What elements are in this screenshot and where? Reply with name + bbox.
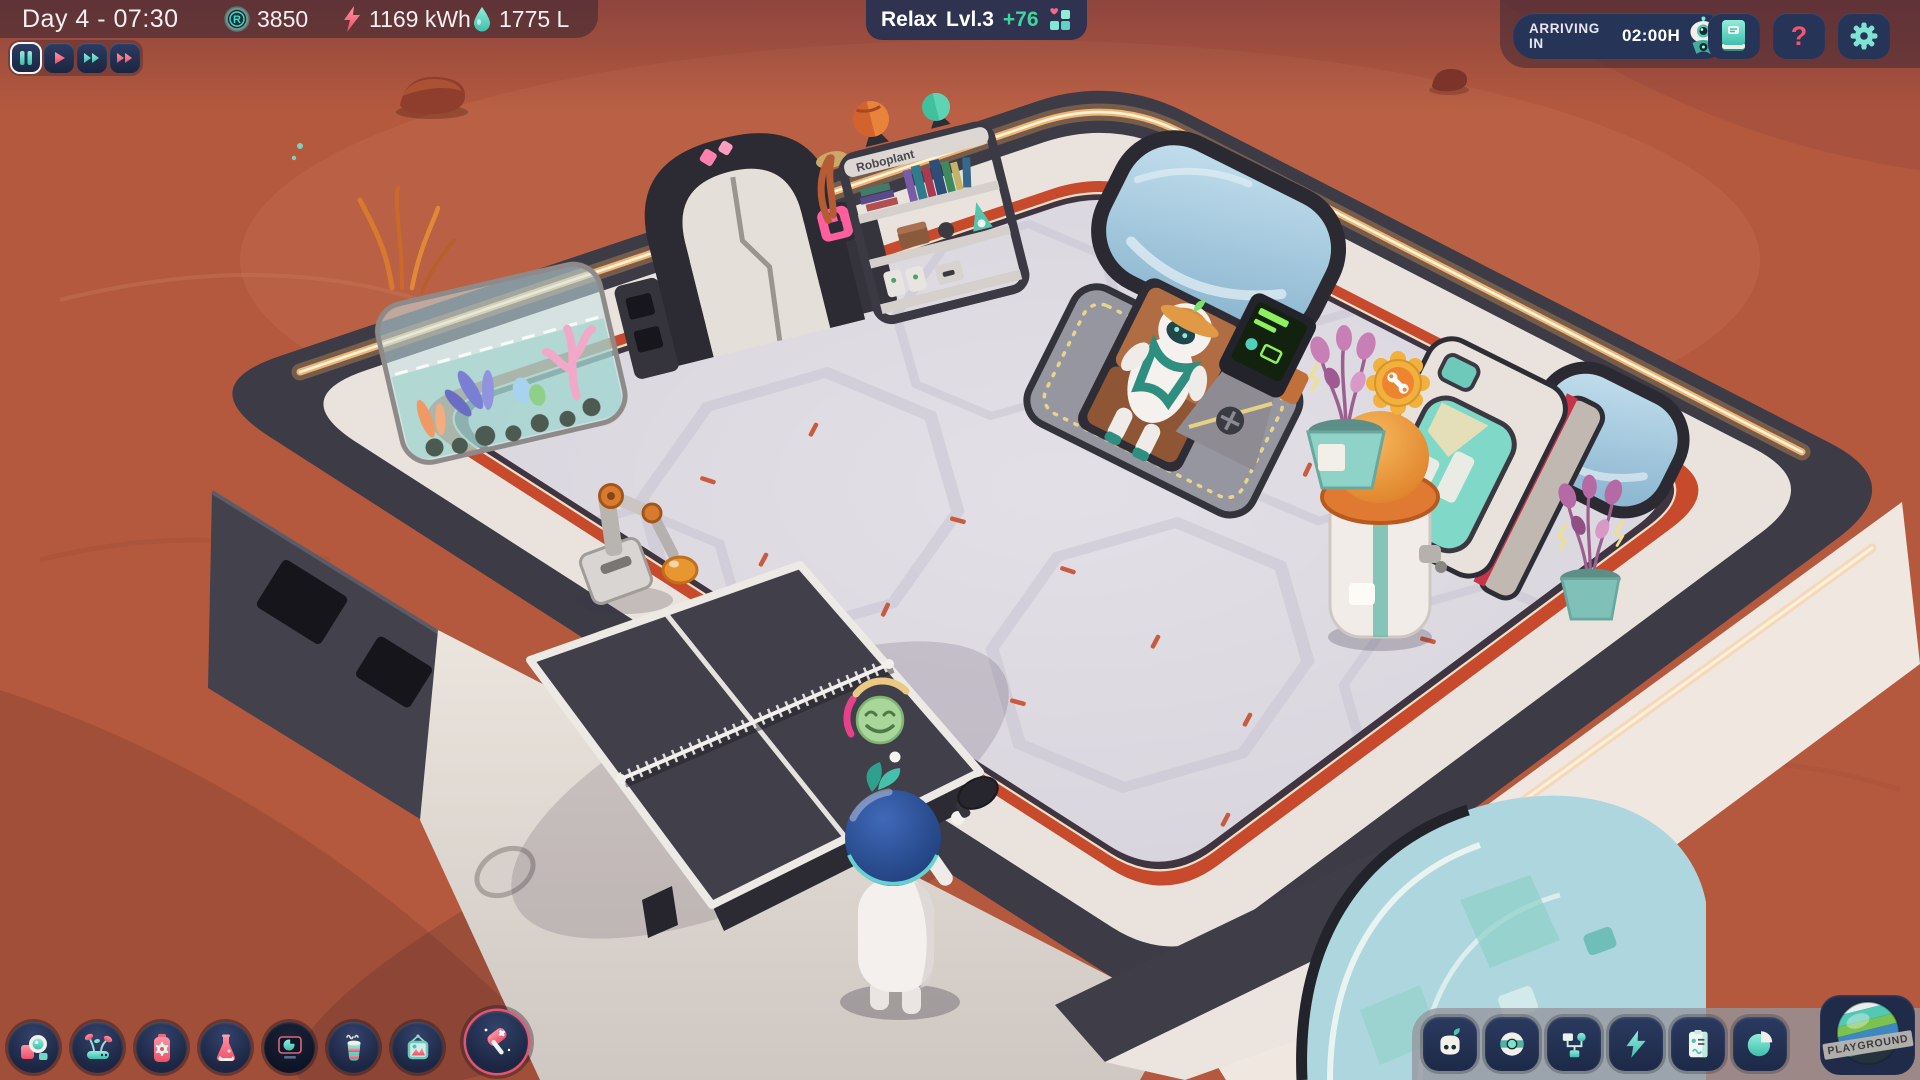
fast-forward-button[interactable] bbox=[77, 43, 107, 73]
flask-icon bbox=[210, 1032, 242, 1064]
day-time: Day 4 - 07:30 bbox=[22, 0, 179, 38]
build-hammer-icon bbox=[478, 1023, 516, 1061]
svg-text:R: R bbox=[233, 14, 241, 26]
question-mark-icon: ? bbox=[1791, 21, 1808, 52]
credits-resource: R 3850 bbox=[224, 0, 308, 38]
comfort-blocks-icon bbox=[1048, 8, 1072, 32]
management-panel: PLAYGROUND bbox=[1412, 1008, 1920, 1080]
top-right-panel: ARRIVING IN 02:00H ? bbox=[1500, 0, 1920, 68]
arrival-timer[interactable]: ARRIVING IN 02:00H bbox=[1513, 13, 1727, 59]
fastest-forward-button[interactable] bbox=[110, 43, 140, 73]
toolbar-decorations-button[interactable] bbox=[392, 1022, 443, 1073]
game-scene: Roboplant bbox=[0, 0, 1920, 1080]
clipboard-icon bbox=[1681, 1027, 1715, 1061]
robot-face-icon bbox=[1433, 1027, 1467, 1061]
ping-pong-ball bbox=[890, 752, 901, 763]
pie-chart-icon bbox=[1743, 1027, 1777, 1061]
toolbar-power-button[interactable] bbox=[136, 1022, 187, 1073]
drone-sphere-icon bbox=[1495, 1027, 1529, 1061]
pause-button[interactable] bbox=[11, 43, 41, 73]
credits-value: 3850 bbox=[257, 6, 308, 33]
picture-frame-icon bbox=[402, 1032, 434, 1064]
battery-gear-icon bbox=[146, 1032, 178, 1064]
nav-drone-button[interactable] bbox=[1485, 1017, 1539, 1071]
coffee-cup-icon bbox=[338, 1032, 370, 1064]
help-button[interactable]: ? bbox=[1773, 13, 1825, 59]
water-resource: 1775 L bbox=[472, 0, 569, 38]
water-value: 1775 L bbox=[499, 6, 569, 33]
nav-statistics-button[interactable] bbox=[1733, 1017, 1787, 1071]
toolbar-farming-button[interactable] bbox=[72, 1022, 123, 1073]
arriving-time: 02:00H bbox=[1622, 26, 1680, 46]
time-controls bbox=[8, 40, 143, 76]
play-icon bbox=[50, 49, 68, 67]
flowchart-icon bbox=[1557, 1027, 1591, 1061]
gear-icon bbox=[1848, 20, 1880, 52]
settings-button[interactable] bbox=[1838, 13, 1890, 59]
lightning-icon bbox=[1619, 1027, 1653, 1061]
energy-value: 1169 kWh bbox=[369, 6, 471, 33]
monitor-chart-icon bbox=[274, 1032, 306, 1064]
playground-button[interactable]: PLAYGROUND bbox=[1820, 995, 1915, 1075]
toolbar-canteen-button[interactable] bbox=[328, 1022, 379, 1073]
play-button[interactable] bbox=[44, 43, 74, 73]
nav-energy-button[interactable] bbox=[1609, 1017, 1663, 1071]
room-name: Relax bbox=[881, 8, 937, 32]
room-bonus: +76 bbox=[1003, 8, 1039, 32]
room-info-badge[interactable]: Relax Lvl.3 +76 bbox=[866, 0, 1087, 40]
arriving-label: ARRIVING IN bbox=[1529, 21, 1616, 51]
room-level: Lvl.3 bbox=[946, 8, 994, 32]
nav-logistics-button[interactable] bbox=[1547, 1017, 1601, 1071]
toolbar-science-button[interactable] bbox=[200, 1022, 251, 1073]
energy-bolt-icon bbox=[342, 5, 362, 33]
management-toolbar bbox=[1423, 1017, 1787, 1071]
nav-robots-button[interactable] bbox=[1423, 1017, 1477, 1071]
nav-reports-button[interactable] bbox=[1671, 1017, 1725, 1071]
game-screen: Roboplant bbox=[0, 0, 1920, 1080]
credits-coin-icon: R bbox=[224, 6, 250, 32]
fastest-forward-icon bbox=[115, 49, 135, 67]
toolbar-rover-button[interactable] bbox=[8, 1022, 59, 1073]
energy-resource: 1169 kWh bbox=[342, 0, 471, 38]
plant-icon bbox=[82, 1032, 114, 1064]
handbook-icon bbox=[1719, 18, 1749, 54]
repair-alert-badge[interactable] bbox=[1366, 351, 1430, 415]
top-status-panel: Day 4 - 07:30 R 3850 1169 kWh 1775 L bbox=[0, 0, 598, 38]
build-toolbar bbox=[8, 1011, 528, 1073]
toolbar-monitoring-button[interactable] bbox=[264, 1022, 315, 1073]
rover-camera-icon bbox=[18, 1032, 50, 1064]
pause-icon bbox=[17, 49, 35, 67]
fast-forward-icon bbox=[82, 49, 102, 67]
water-drop-icon bbox=[472, 6, 492, 32]
toolbar-build-button[interactable] bbox=[466, 1011, 528, 1073]
handbook-button[interactable] bbox=[1708, 13, 1760, 59]
